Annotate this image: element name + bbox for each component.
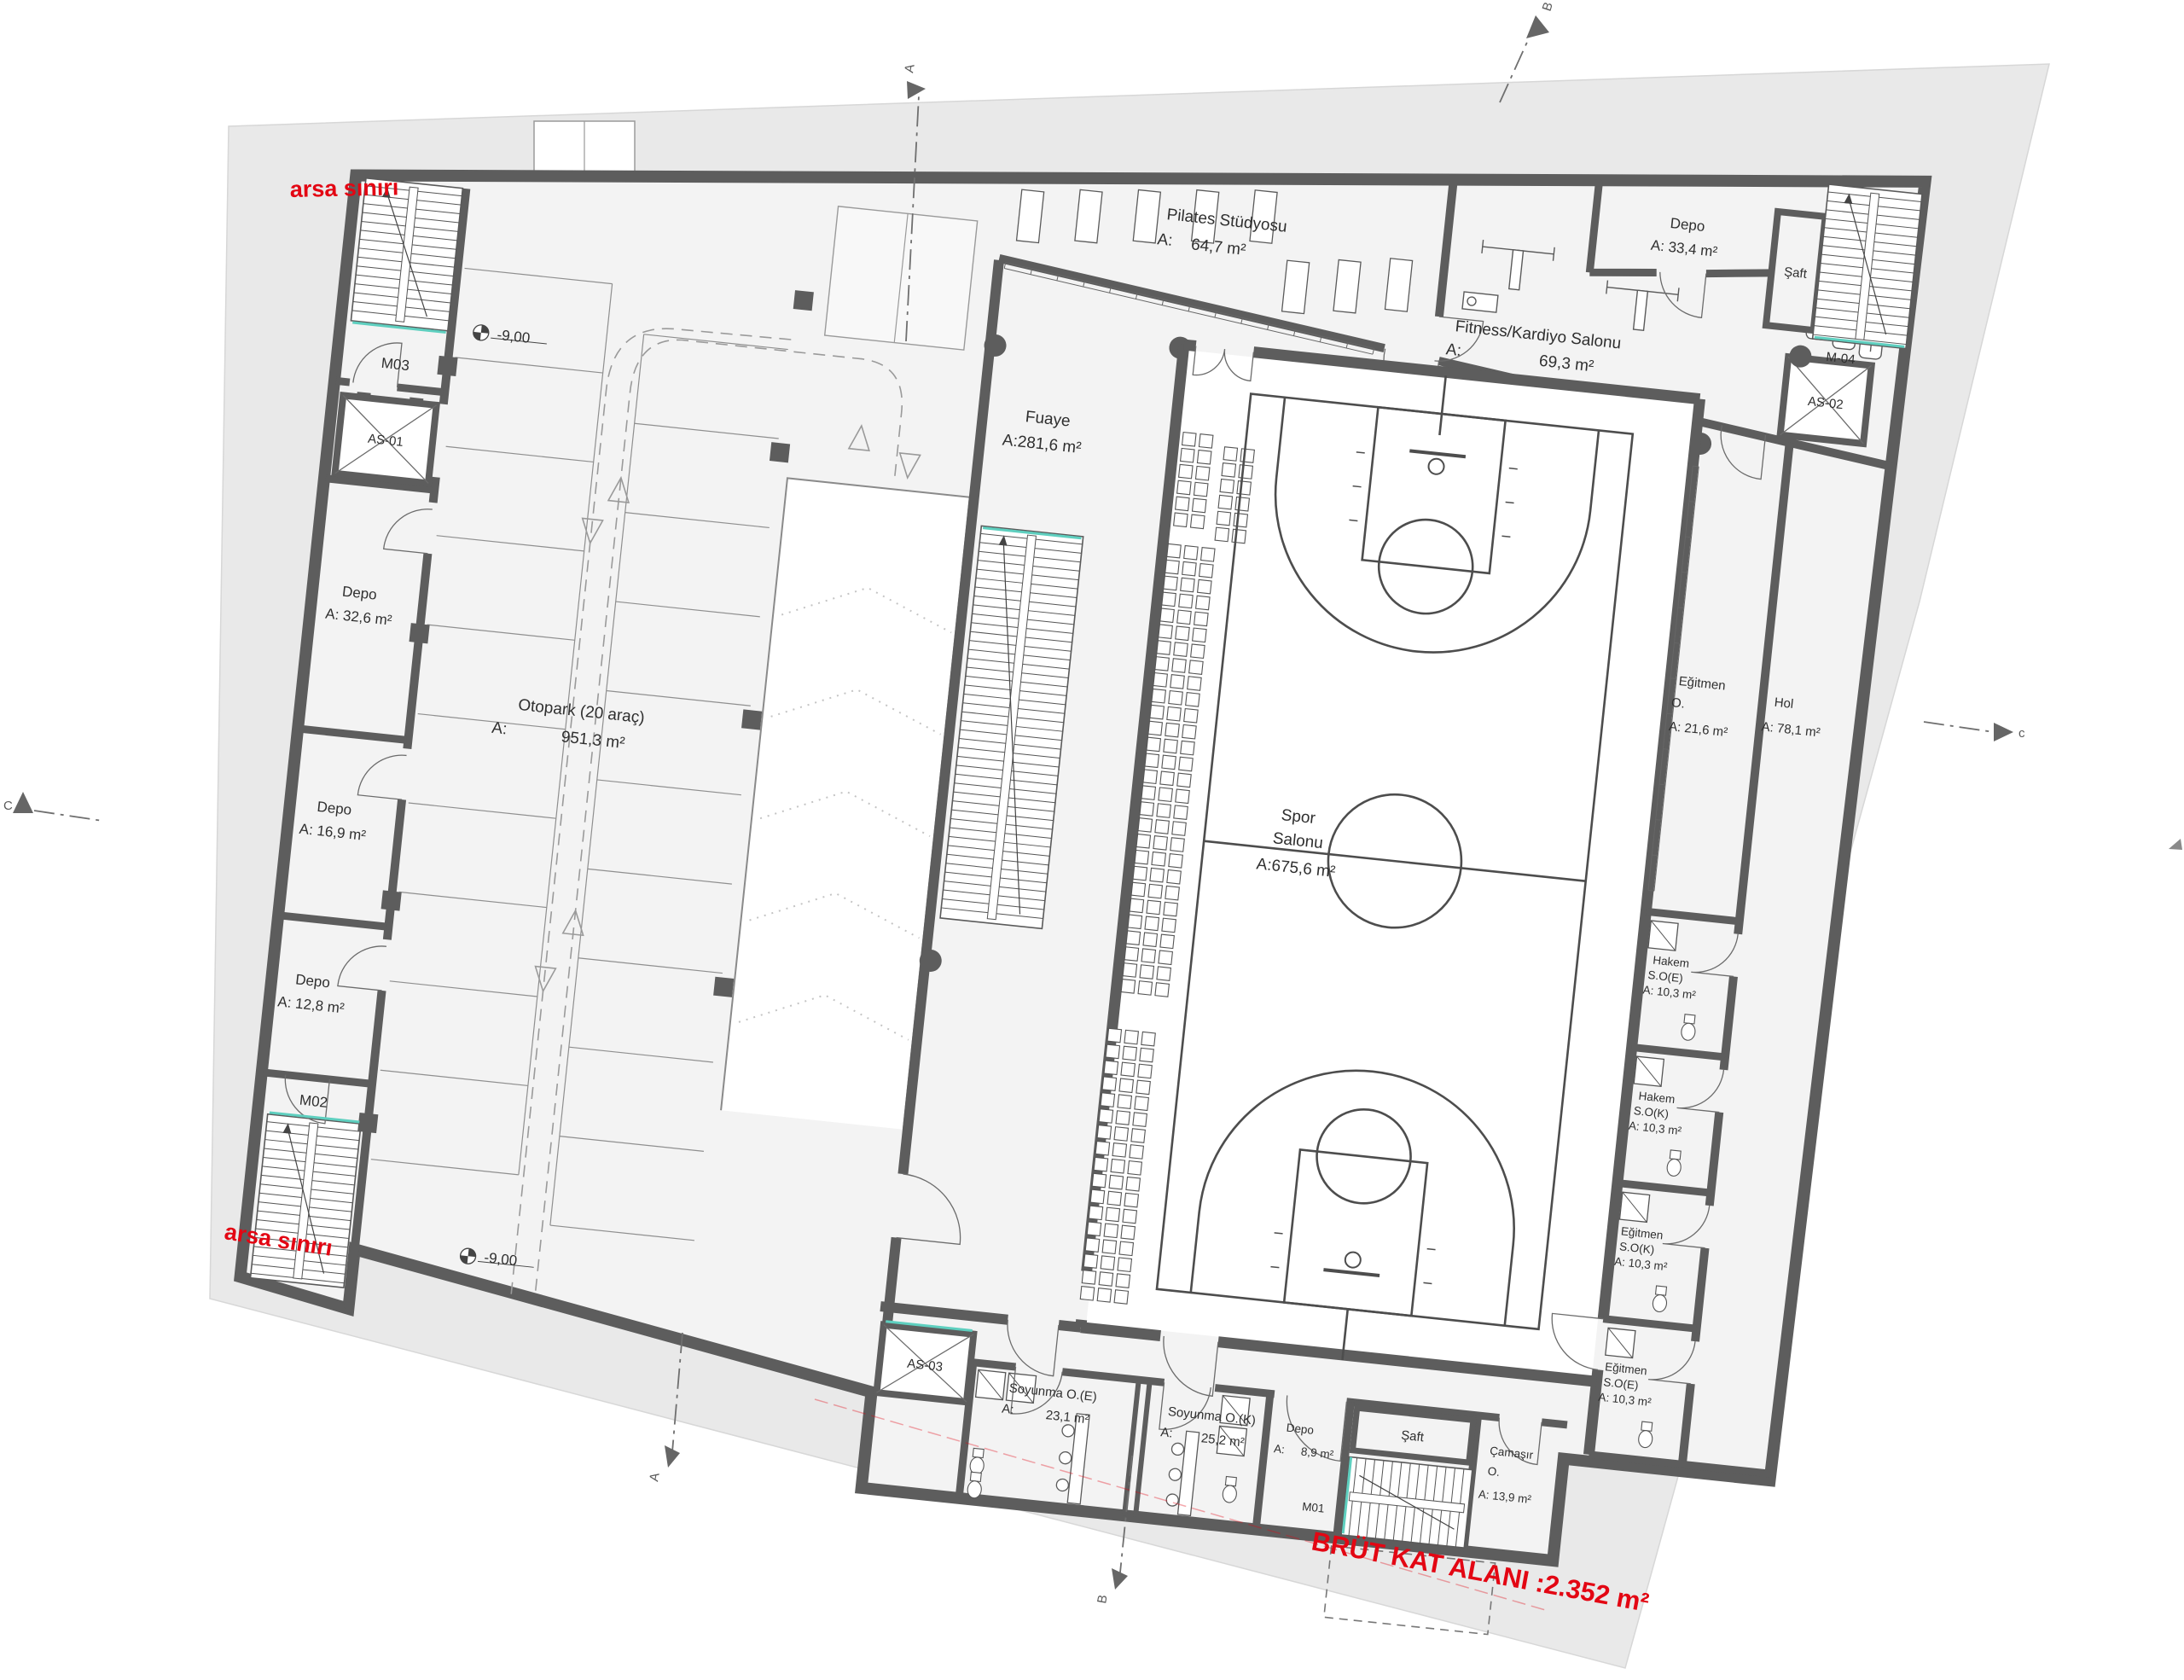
label-saft-bottom: Şaft bbox=[1400, 1428, 1425, 1445]
label-depo-89-a: A: bbox=[1273, 1442, 1285, 1456]
label-soyunma-k-a: A: bbox=[1160, 1425, 1174, 1440]
section-c-right: c bbox=[2018, 726, 2025, 741]
label-camasir-2: O. bbox=[1487, 1465, 1501, 1479]
floor-plan-svg: M03 AS-01 Depo A: 32,6 m² Depo A: 16,9 m… bbox=[0, 0, 2184, 1680]
section-a-bottom: A bbox=[647, 1472, 662, 1483]
label-spor: Spor bbox=[1281, 806, 1317, 828]
label-fitness-a: A: bbox=[1445, 340, 1462, 360]
arsa-siniri-top: arsa sınırı bbox=[289, 174, 398, 202]
label-m01: M01 bbox=[1302, 1500, 1326, 1515]
label-level-2: -9,00 bbox=[484, 1249, 519, 1269]
label-otopark-a: A: bbox=[491, 719, 508, 739]
building: M03 AS-01 Depo A: 32,6 m² Depo A: 16,9 m… bbox=[217, 19, 1926, 1665]
label-m04: M-04 bbox=[1826, 350, 1856, 367]
label-hol: Hol bbox=[1774, 695, 1794, 712]
label-level-1: -9,00 bbox=[497, 327, 531, 346]
stair-m03 bbox=[351, 178, 462, 331]
label-m02: M02 bbox=[299, 1092, 328, 1111]
label-saft-top: Şaft bbox=[1783, 264, 1808, 282]
stair-m02 bbox=[251, 1114, 362, 1288]
label-m03: M03 bbox=[380, 355, 410, 374]
section-a-top: A bbox=[902, 63, 917, 74]
label-egitmen-o2: O. bbox=[1670, 695, 1686, 712]
floor-plan-page: M03 AS-01 Depo A: 32,6 m² Depo A: 16,9 m… bbox=[0, 0, 2184, 1680]
otopark-void bbox=[825, 206, 978, 350]
section-c-left: C bbox=[3, 799, 13, 813]
label-pilates-a: A: bbox=[1156, 230, 1173, 250]
section-b-bottom: B bbox=[1095, 1594, 1110, 1605]
section-b-top: B bbox=[1540, 0, 1556, 13]
label-soyunma-e-a: A: bbox=[1001, 1402, 1014, 1417]
edge-tick bbox=[2169, 839, 2182, 850]
stair-m04 bbox=[1813, 184, 1922, 349]
